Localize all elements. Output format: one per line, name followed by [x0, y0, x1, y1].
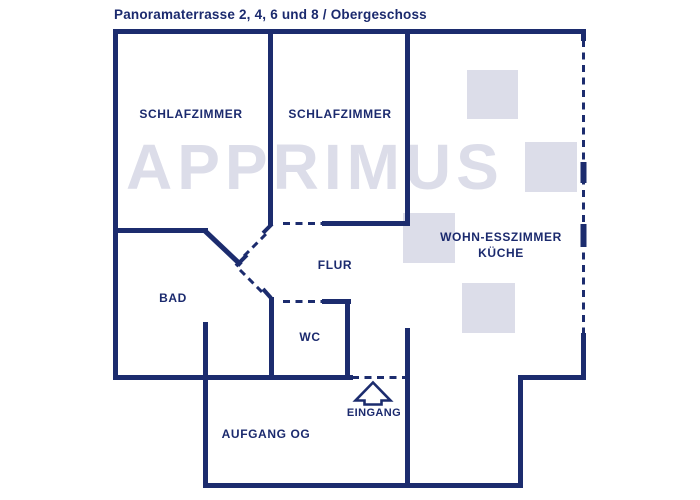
- room-label-schlafzimmer-2: SCHLAFZIMMER: [288, 107, 391, 121]
- room-label-wohn-esszimmer-line1: WOHN-ESSZIMMER: [440, 229, 562, 245]
- wall-bad-bottom: [113, 375, 353, 380]
- room-label-schlafzimmer-1: SCHLAFZIMMER: [139, 107, 242, 121]
- door-jamb-tick: [263, 289, 271, 298]
- wall-chamfer-diagonal: [204, 230, 241, 265]
- wall-right-top-stub: [581, 29, 586, 41]
- wall-wc-right: [345, 299, 350, 380]
- room-label-wc: WC: [299, 330, 320, 344]
- wall-entry-right: [405, 328, 410, 488]
- room-label-wohn-esszimmer: WOHN-ESSZIMMER KÜCHE: [440, 229, 562, 261]
- wall-bad-top: [113, 228, 208, 233]
- wall-right-lower: [581, 333, 586, 380]
- wall-flur-top: [322, 221, 410, 226]
- wall-bottom: [203, 483, 523, 488]
- wall-wc-left: [269, 297, 274, 380]
- door-bad-diagonal-dashed: [240, 270, 264, 294]
- floorplan-page: APPRIMUS Panoramaterrasse 2, 4, 6 und 8 …: [0, 0, 700, 500]
- wall-stairwell: [203, 322, 208, 488]
- wall-left: [113, 29, 118, 380]
- room-label-flur: FLUR: [318, 258, 352, 272]
- door-jamb-tick: [263, 224, 272, 233]
- label-aufgang-og: AUFGANG OG: [222, 427, 311, 441]
- wall-schlafzimmer2-right: [405, 29, 410, 226]
- page-title: Panoramaterrasse 2, 4, 6 und 8 / Oberges…: [114, 7, 427, 22]
- room-label-kueche-line2: KÜCHE: [440, 245, 562, 261]
- door-schlafzimmer1-diagonal-dashed: [244, 233, 267, 256]
- wall-bedroom-divider: [268, 29, 273, 226]
- room-label-bad: BAD: [159, 291, 187, 305]
- label-eingang: EINGANG: [347, 407, 401, 419]
- floorplan-drawing: [0, 0, 700, 500]
- wall-nook-right: [518, 375, 523, 488]
- wall-living-bottom: [518, 375, 586, 380]
- wall-top: [113, 29, 586, 34]
- entrance-arrow-icon: [356, 383, 391, 405]
